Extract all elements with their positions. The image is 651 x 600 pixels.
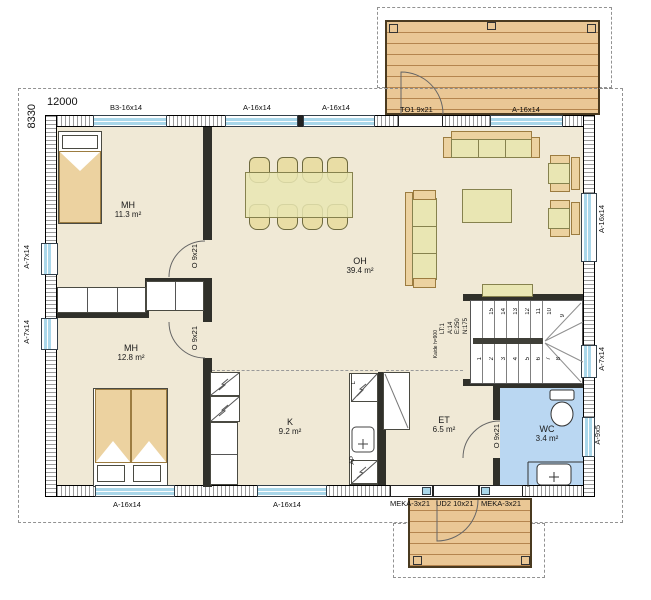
porch-deck [408,498,532,568]
room-area: 9.2 m² [262,427,318,436]
fridge [210,372,240,396]
bed-pillow [97,465,125,482]
window-label: A-16x14 [243,103,271,112]
stair-treads-upper [471,301,545,341]
window-label: A-16x14 [273,500,301,509]
armchair-seat [548,163,570,184]
room-label-et: ET 6.5 m² [416,415,472,434]
door-label: O 9x21 [190,244,199,268]
cushion-divider [413,226,436,227]
window-label: A-16x14 [597,205,606,233]
window-label: A-7x14 [597,347,606,371]
stair-step-number: 7 [546,357,552,360]
armchair-back [571,202,580,235]
bench [482,284,533,297]
sofa-armrest [531,137,540,158]
room-area: 39.4 m² [332,266,388,275]
stair-info-line: A:14 [448,308,456,334]
window-label: A-9x5 [593,425,602,445]
stair-step-number: 12 [525,308,531,315]
sidelight-label: MEKA-3x21 [481,499,521,508]
armchair-armrest [550,228,570,237]
armchair [548,155,580,192]
closet-divider [175,282,176,310]
room-name: WC [519,424,575,434]
interior-wall [57,313,149,318]
door-label: O 9x21 [190,326,199,350]
open-boundary-et [386,370,463,371]
room-label-mh1: MH 11.3 m² [100,200,156,219]
sidelight-glass [481,487,490,495]
porch-post [521,556,530,565]
kitchen-counter-left [210,422,238,485]
window-b3 [93,115,167,127]
stair-step-number: 13 [513,308,519,315]
window-label: A-16x14 [113,500,141,509]
armchair [548,200,580,237]
window-left-2 [41,318,58,350]
room-area: 11.3 m² [100,210,156,219]
window-label: A-7x14 [22,320,31,344]
room-name: ET [416,415,472,425]
room-label-k: K 9.2 m² [262,417,318,436]
armchair-back [571,157,580,190]
interior-wall-wc [493,458,500,487]
cushion-divider [505,140,506,157]
stair-rail [473,338,543,344]
armchair-armrest [550,183,570,192]
coffee-table [462,189,512,223]
stair-info-line: E:250 [455,308,463,334]
room-label-wc: WC 3.4 m² [519,424,575,443]
stair-info-line: N:175 [463,308,471,334]
stair-step-number: 1 [477,357,483,360]
stove [351,373,378,402]
window-terrace [490,115,563,127]
exterior-wall-left [45,115,57,497]
window-label: A-16x14 [512,105,540,114]
handrail-label: Kaide h=900 [433,330,439,358]
stair-step-number: 4 [513,357,519,360]
sofa2-armrest [413,278,436,288]
window-top-a1 [225,115,298,127]
window-left-1 [41,243,58,275]
stair-step-number: 10 [547,308,553,315]
stair-info-line: LT:1 [440,308,448,334]
window-bottom-a2 [257,485,327,497]
stair-step-number: 6 [536,357,542,360]
interior-wall [203,127,212,240]
bed-pillow [62,135,98,149]
window-top-a2 [303,115,375,127]
room-label-mh2: MH 12.8 m² [103,343,159,362]
terrace-deck [385,20,600,115]
terrace-post [389,24,398,33]
window-label: B3-16x14 [110,103,142,112]
terrace-post [587,24,596,33]
entry-door-panel [433,485,479,497]
door-label: O 9x21 [492,424,501,448]
room-name: MH [100,200,156,210]
interior-wall [203,278,212,322]
stair-step-number: 5 [525,357,531,360]
room-area: 6.5 m² [416,425,472,434]
window-right-1 [581,193,597,262]
stair-step-number: 15 [489,308,495,315]
terrace-door-panel [398,115,443,127]
room-name: K [262,417,318,427]
window-label: A-16x14 [322,103,350,112]
armchair-seat [548,208,570,229]
cushion-divider [478,140,479,157]
sidelight-label: MEKA-3x21 [390,499,430,508]
stair-step-number: 14 [501,308,507,315]
window-bottom-a1 [95,485,175,497]
et-closet [383,372,410,430]
room-name: OH [332,256,388,266]
dimension-width: 12000 [47,96,78,108]
closet-mh2 [146,281,204,311]
dimension-height: 8330 [26,104,38,128]
closet-mh1 [57,287,146,313]
room-label-oh: OH 39.4 m² [332,256,388,275]
closet-divider [87,288,88,312]
terrace-door-label: TO1 9x21 [400,105,433,114]
cushion-divider [413,253,436,254]
window-right-2 [581,345,597,378]
stair-step-number: 8 [556,357,562,360]
stair-treads-lower [471,343,545,383]
interior-wall-wc [493,388,500,420]
sidelight-glass [422,487,431,495]
eave-line-over-terrace [385,88,612,89]
room-area: 3.4 m² [519,434,575,443]
stair-step-number: 9 [560,314,566,317]
room-area: 12.8 m² [103,353,159,362]
closet-divider [117,288,118,312]
bed-pillow [133,465,161,482]
room-name: MH [103,343,159,353]
entry-door-label: UD2 10x21 [436,499,474,508]
sofa2-seat [412,198,437,280]
floor-plan: 12000 8330 B3-16x14 A-16x14 A-16x14 TO1 … [0,0,651,600]
entry-sidelight-right [479,485,523,497]
sofa-seat [451,139,532,158]
window-label: A-7x14 [22,245,31,269]
porch-post [413,556,422,565]
terrace-post [487,22,496,30]
sofa2-armrest [413,190,436,200]
dining-table [245,172,353,218]
freezer [210,396,240,422]
counter-divider [211,454,237,455]
dishwasher-label: AP [349,456,356,465]
stair-info: LT:1 A:14 E:250 N:175 [440,308,470,334]
stair-step-number: 3 [501,357,507,360]
stair-step-number: 11 [536,308,542,314]
open-boundary-kitchen [212,370,378,371]
stove-label: L [351,381,357,384]
stair-step-number: 2 [489,357,495,360]
entry-sidelight-left [390,485,433,497]
